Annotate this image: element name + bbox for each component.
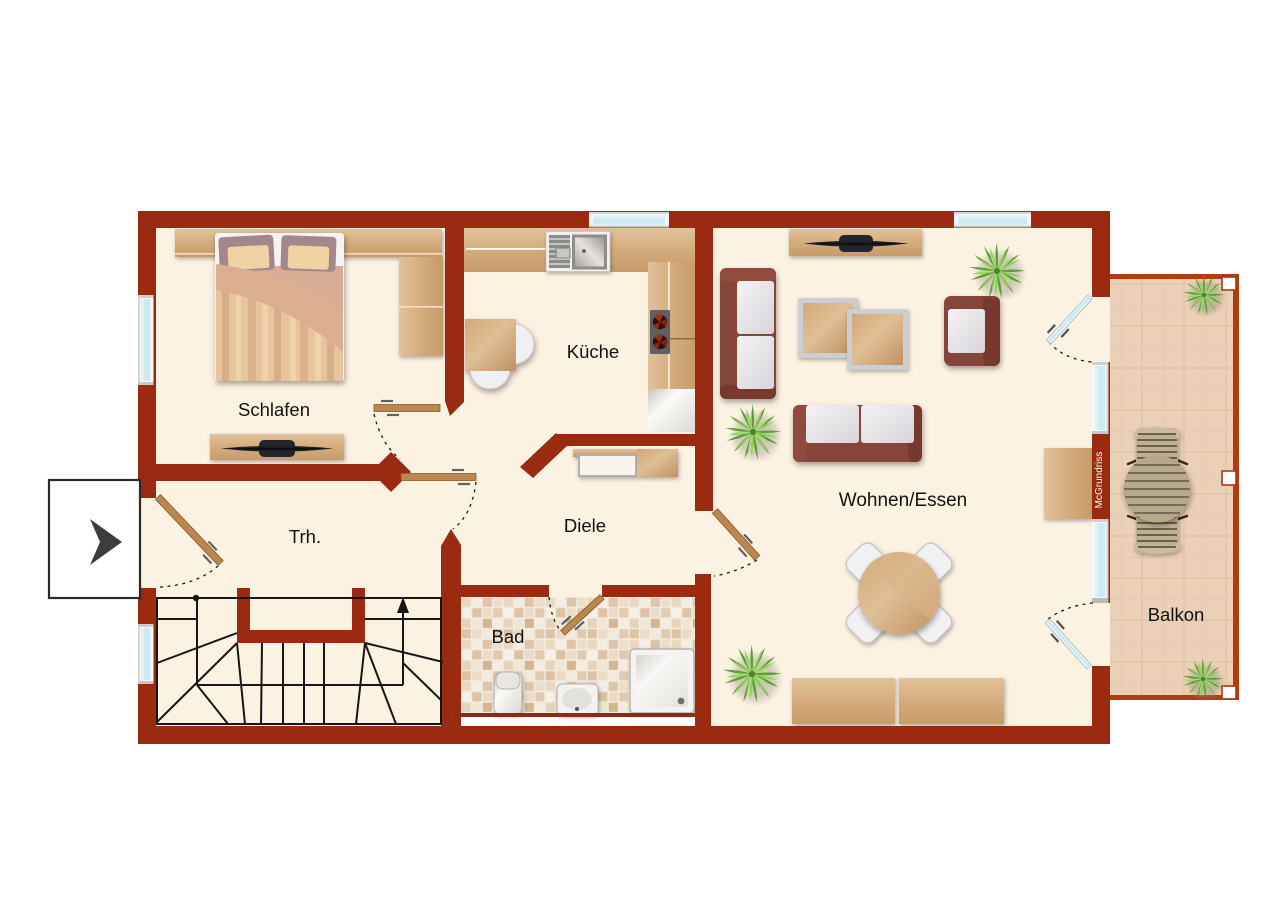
svg-text:Wohnen/Essen: Wohnen/Essen bbox=[839, 490, 968, 511]
svg-text:McGrundriss: McGrundriss bbox=[1094, 452, 1105, 509]
svg-text:Trh.: Trh. bbox=[289, 526, 321, 547]
svg-text:Diele: Diele bbox=[564, 515, 606, 536]
svg-text:Balkon: Balkon bbox=[1148, 604, 1205, 625]
svg-text:Küche: Küche bbox=[567, 341, 619, 362]
svg-text:Schlafen: Schlafen bbox=[238, 399, 310, 420]
svg-text:Bad: Bad bbox=[492, 626, 525, 647]
